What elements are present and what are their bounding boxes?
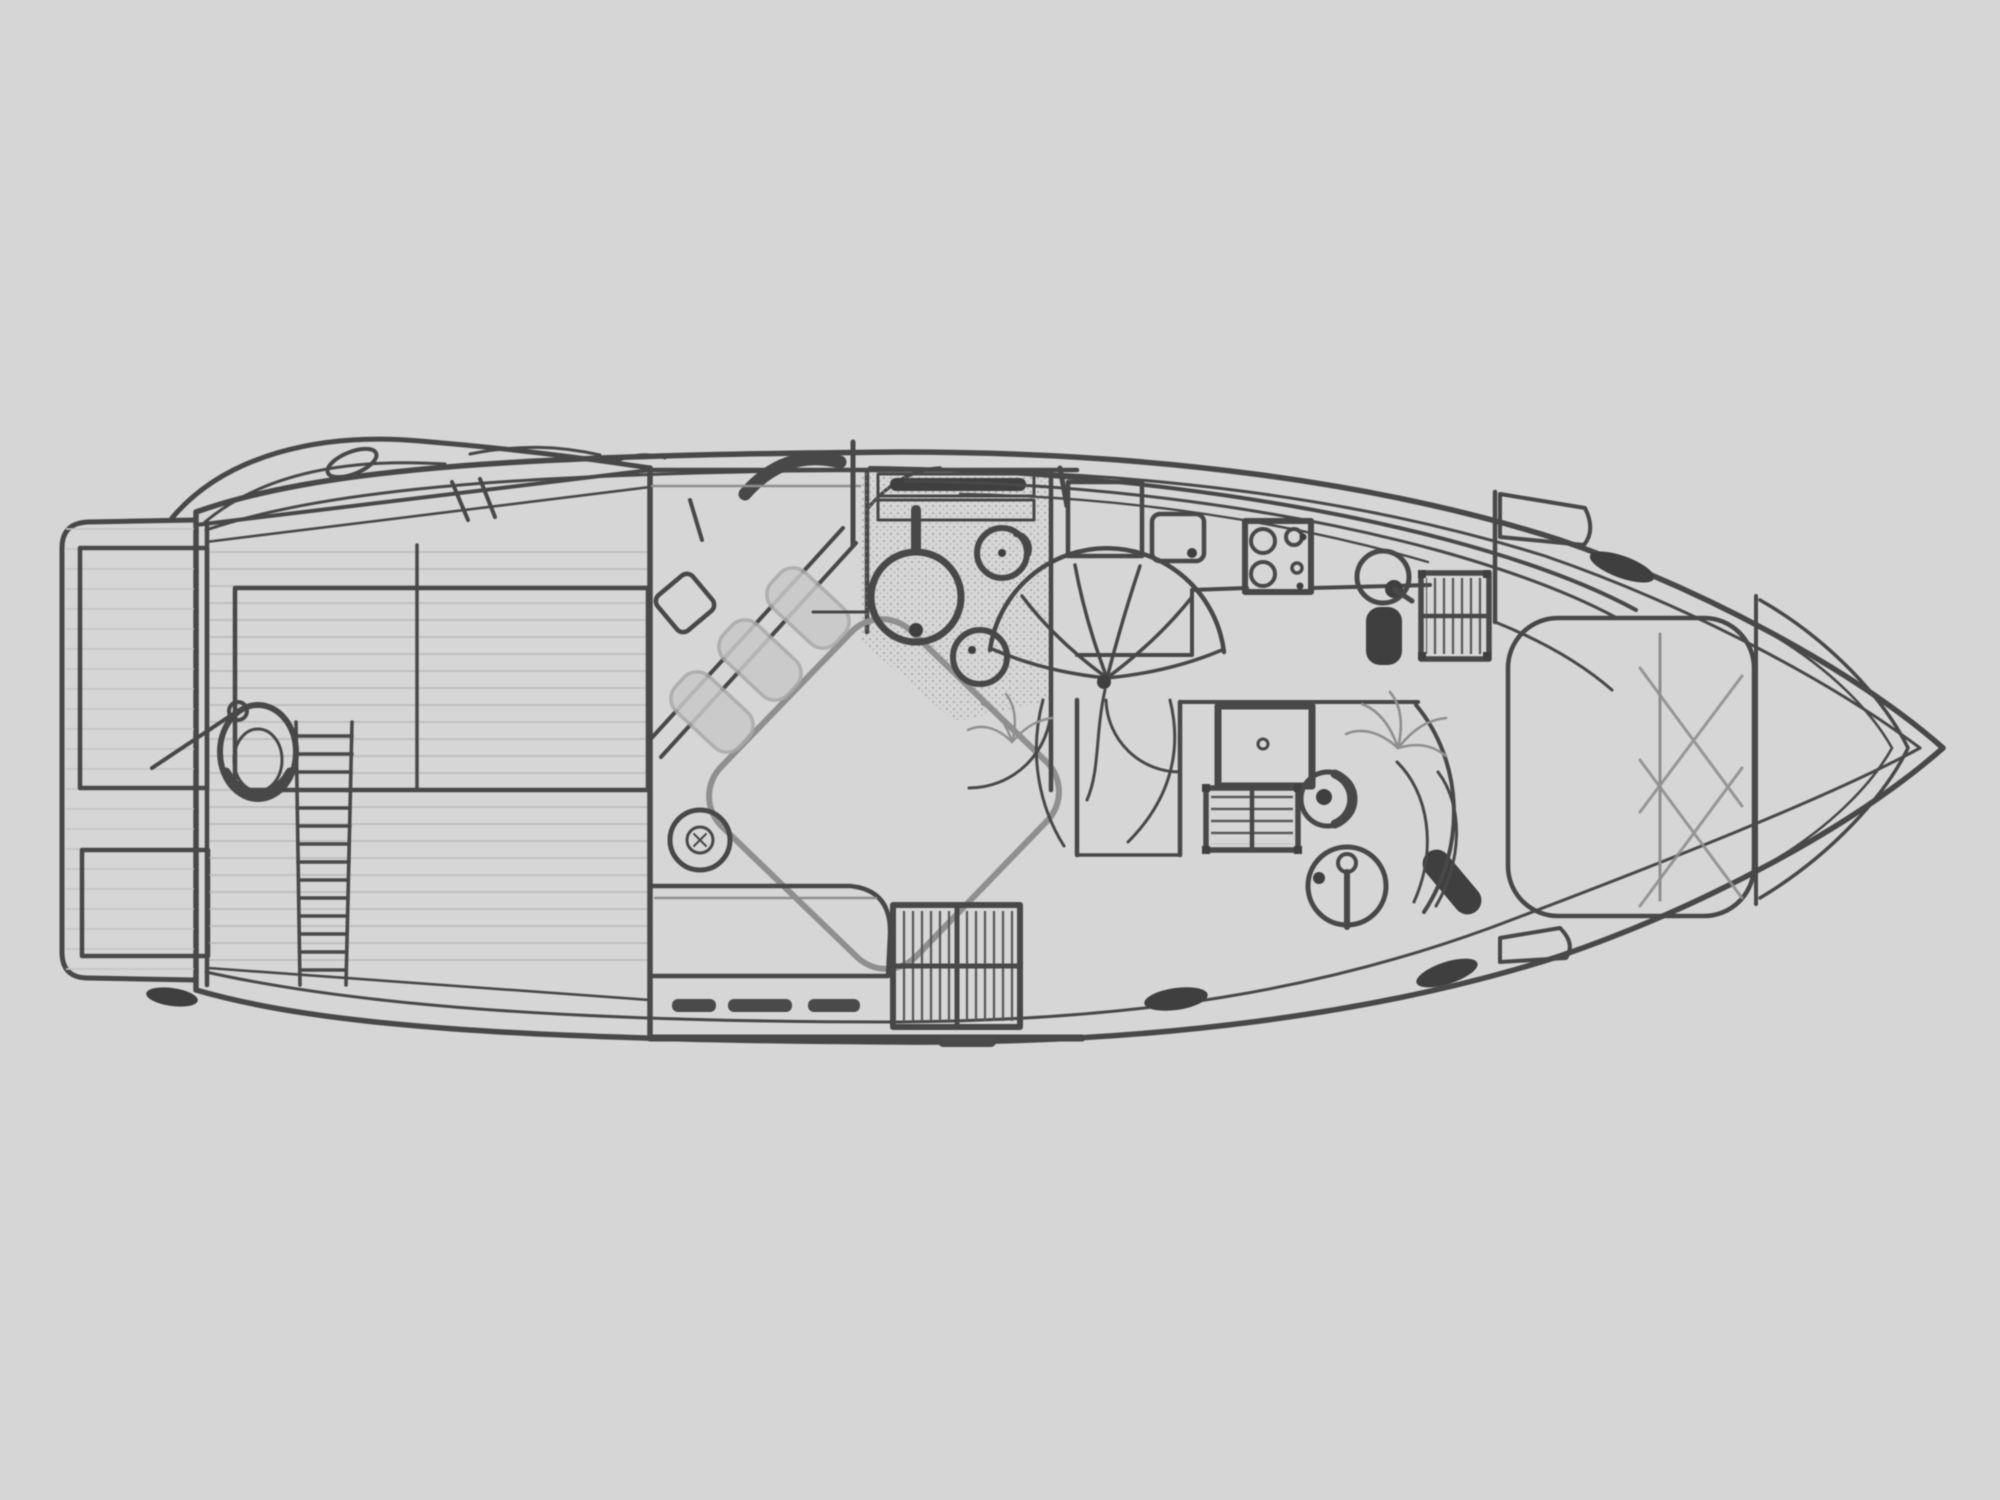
- vanity-stool: [653, 571, 718, 636]
- fwd-head-door-swing: [1106, 700, 1180, 772]
- fwd-toilet: [1301, 772, 1355, 826]
- louvred-drawer-unit: [1202, 784, 1302, 854]
- appliance-knob: [1187, 548, 1197, 558]
- bow: Bow with pulpit lines: [1760, 600, 1908, 898]
- galley: Galley with cooktop, round sink, applian…: [1068, 482, 1495, 665]
- louvred-cabinet: [893, 905, 1020, 1027]
- stern-cleat: [145, 984, 199, 1009]
- mid-head: Midship bathroom with toilet, two basins…: [813, 442, 1067, 790]
- refrigerator-grid: [1418, 570, 1491, 660]
- floor-plan-canvas: yacht-deck-floor-plan Hull outline with …: [0, 0, 2000, 1500]
- shower-glass-1: [1397, 762, 1427, 902]
- bow-inner-v-1: [1760, 600, 1908, 898]
- round-stool: [670, 810, 730, 870]
- coaming-curve-fwd: [1495, 622, 1612, 690]
- swim-platform: Swim platform with transom lockers: [62, 520, 208, 1010]
- cockpit-coaming-top-1: [196, 470, 650, 525]
- aft-deck: Aft cockpit with planked sole, hatch, se…: [152, 439, 940, 1000]
- galley-sink: [1357, 551, 1412, 665]
- side-cabinet-bottom: [1500, 928, 1570, 962]
- fwd-basin: [1308, 847, 1386, 927]
- shower-pan: [1218, 706, 1312, 786]
- waste-bin: [1366, 607, 1402, 665]
- quilted-lattice: [1640, 668, 1742, 906]
- cockpit-teak-sole: [208, 544, 648, 966]
- settee: [653, 886, 890, 976]
- cleat-mid-bottom: [1143, 984, 1209, 1015]
- yacht-floor-plan: yacht-deck-floor-plan Hull outline with …: [0, 0, 2000, 1500]
- bed-forward: [1508, 618, 1754, 916]
- radar-arch-foot: [745, 459, 840, 494]
